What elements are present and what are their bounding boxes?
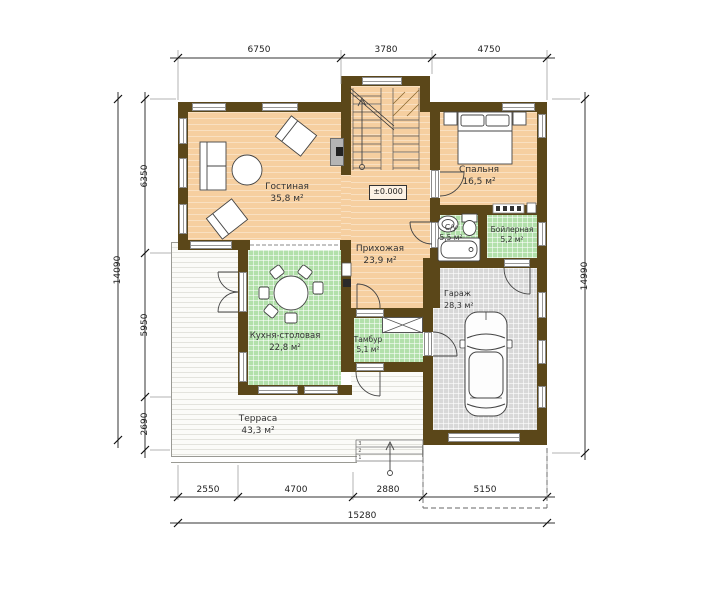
room-label-terrace: Терраса 43,3 м² — [213, 413, 303, 437]
terrace-edge — [171, 462, 357, 463]
floor-living — [188, 112, 341, 240]
window — [190, 241, 232, 249]
step-number: 2 — [358, 449, 361, 454]
dim-top-2: 3780 — [351, 45, 421, 55]
room-name: Терраса — [213, 413, 303, 425]
step-number: 3 — [358, 442, 361, 447]
floor-kitchen — [248, 250, 341, 385]
dim-bottom-4: 5150 — [450, 485, 520, 495]
room-area: 35,8 м² — [242, 193, 332, 205]
room-name: Бойлерная — [485, 225, 539, 235]
dim-bottom-3: 2880 — [353, 485, 423, 495]
room-area: 23,9 м² — [335, 255, 425, 267]
room-area: 43,3 м² — [213, 425, 303, 437]
window — [179, 204, 187, 234]
room-label-living: Гостиная 35,8 м² — [242, 181, 332, 205]
window — [179, 118, 187, 144]
floor-passage — [341, 175, 351, 240]
window — [538, 114, 546, 138]
dim-right-total: 14990 — [580, 251, 590, 301]
room-label-garage: Гараж 28,3 м² — [444, 288, 504, 312]
window — [258, 386, 298, 394]
garage-door — [448, 433, 520, 442]
room-label-kitchen: Кухня-столовая 22,8 м² — [240, 330, 330, 354]
window — [502, 103, 535, 111]
door-opening-french — [239, 272, 247, 312]
room-name: Кухня-столовая — [240, 330, 330, 342]
room-label-bedroom: Спальня 16,5 м² — [434, 164, 524, 188]
terrace-porch — [351, 372, 423, 395]
room-label-bathroom: С/у 5,5 м² — [431, 223, 471, 243]
floor-bedroom — [440, 112, 537, 205]
window — [304, 386, 338, 394]
wall-segment — [420, 86, 430, 112]
fireplace-opening — [336, 147, 343, 156]
floor-plan: Гостиная 35,8 м² Спальня 16,5 м² Прихожа… — [0, 0, 720, 600]
room-label-boiler: Бойлерная 5,2 м² — [485, 225, 539, 245]
terrace-edge — [171, 242, 172, 457]
window — [362, 77, 402, 85]
wall-segment — [430, 205, 537, 215]
window — [262, 103, 298, 111]
driveway-dashed-line — [423, 448, 547, 508]
window — [538, 340, 546, 364]
room-area: 28,3 м² — [444, 300, 504, 312]
door-opening — [504, 259, 530, 267]
window — [538, 386, 546, 408]
door-opening — [356, 309, 384, 317]
level-mark: ±0.000 — [369, 185, 407, 200]
terrace-edge — [422, 445, 423, 457]
wall-segment — [430, 112, 440, 170]
door-opening — [356, 363, 384, 371]
dim-bottom-2: 4700 — [261, 485, 331, 495]
dim-left-3: 2690 — [140, 399, 150, 449]
step-number: 1 — [358, 456, 361, 461]
dim-bottom-1: 2550 — [173, 485, 243, 495]
wardrobe — [382, 317, 423, 333]
room-name: Тамбур — [346, 335, 390, 345]
room-label-hallway: Прихожая 23,9 м² — [335, 243, 425, 267]
room-label-vestibule: Тамбур 5,1 м² — [346, 335, 390, 355]
room-area: 5,2 м² — [485, 235, 539, 245]
window — [179, 158, 187, 188]
dim-left-1: 6350 — [140, 151, 150, 201]
door-opening — [424, 332, 432, 356]
room-name: Гостиная — [242, 181, 332, 193]
window — [538, 222, 546, 246]
room-area: 22,8 м² — [240, 342, 330, 354]
dim-bottom-total: 15280 — [327, 511, 397, 521]
wall-segment — [423, 268, 433, 332]
terrace-edge — [171, 456, 357, 457]
dim-top-1: 6750 — [224, 45, 294, 55]
room-area: 5,5 м² — [431, 233, 471, 243]
room-name: Прихожая — [335, 243, 425, 255]
room-name: Гараж — [444, 288, 504, 300]
window — [192, 103, 226, 111]
room-name: С/у — [431, 223, 471, 233]
room-name: Спальня — [434, 164, 524, 176]
dim-left-total: 14090 — [113, 245, 123, 295]
dim-left-2: 5950 — [140, 300, 150, 350]
window — [538, 292, 546, 318]
room-area: 5,1 м² — [346, 345, 390, 355]
window — [239, 352, 247, 382]
dim-top-3: 4750 — [454, 45, 524, 55]
room-area: 16,5 м² — [434, 176, 524, 188]
